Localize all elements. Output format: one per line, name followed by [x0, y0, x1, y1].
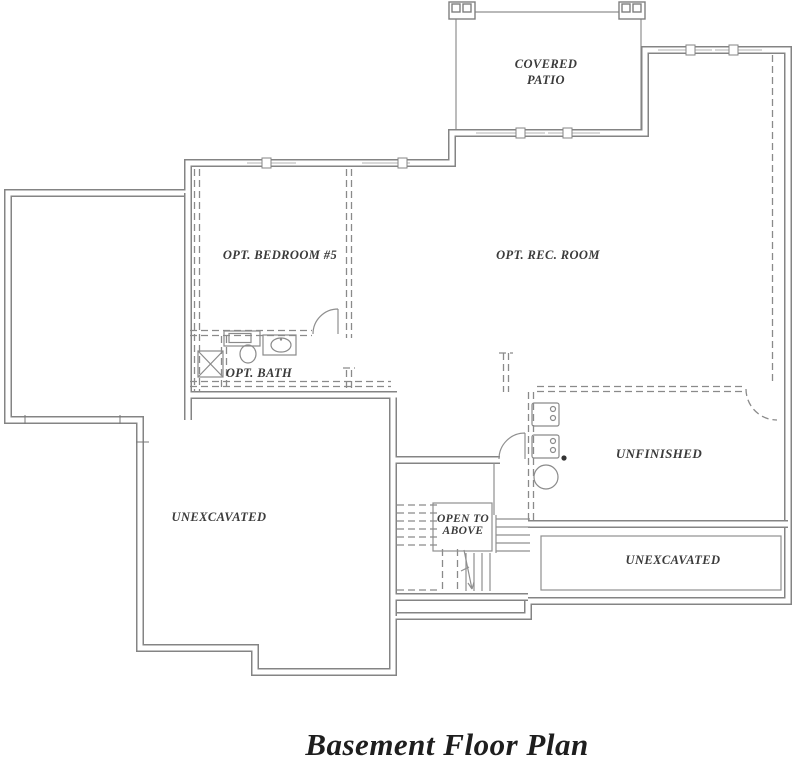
- shower: [198, 351, 223, 377]
- window-tick: [516, 128, 525, 138]
- room-label-unexcavated-right: UNEXCAVATED: [626, 553, 721, 567]
- room-label-open-to-above-line2: ABOVE: [442, 525, 484, 537]
- post-pier: [633, 4, 641, 12]
- window-tick: [398, 158, 407, 168]
- window-glass-line: [247, 50, 762, 163]
- room-label-opt-bedroom: OPT. BEDROOM #5: [223, 248, 337, 262]
- post-pier: [452, 4, 460, 12]
- room-label-unexcavated-left: UNEXCAVATED: [172, 510, 267, 524]
- sink-vanity: [263, 335, 296, 355]
- post-pier: [622, 4, 630, 12]
- furnace-unit: [532, 403, 559, 426]
- floor-drain-dot: [561, 455, 566, 460]
- window-tick: [563, 128, 572, 138]
- post-pier: [463, 4, 471, 12]
- room-label-opt-bath: OPT. BATH: [226, 366, 293, 380]
- opt-wall-bedroom-east: [343, 169, 355, 390]
- opt-wall-bedroom-west: [195, 169, 200, 392]
- plan-title: Basement Floor Plan: [304, 727, 588, 762]
- window-tick: [686, 45, 695, 55]
- vanity-counter: [224, 331, 260, 346]
- opt-wall-bath-south: [190, 382, 391, 387]
- stair-door-arc: [499, 433, 525, 459]
- patio-post-right: [619, 2, 645, 19]
- exterior-walls: [8, 50, 788, 672]
- water-heater-unit: [532, 435, 559, 458]
- windows: [247, 45, 762, 168]
- opt-wall-rec-south: [537, 387, 746, 392]
- doors: [313, 309, 525, 459]
- room-label-opt-rec-room: OPT. REC. ROOM: [496, 248, 600, 262]
- water-tank: [534, 465, 558, 489]
- floor-plan-page: COVERED PATIO OPT. BEDROOM #5 OPT. REC. …: [0, 0, 799, 768]
- window-tick: [729, 45, 738, 55]
- floor-plan-svg: COVERED PATIO OPT. BEDROOM #5 OPT. REC. …: [0, 0, 799, 768]
- window-tick: [262, 158, 271, 168]
- opt-wall-stub: [499, 353, 513, 392]
- toilet: [240, 345, 256, 363]
- room-label-covered-patio-line2: PATIO: [527, 73, 565, 87]
- utility-fixtures: [532, 403, 567, 489]
- stair-direction-arrow: [461, 550, 474, 589]
- room-label-covered-patio-line1: COVERED: [515, 57, 578, 71]
- room-label-open-to-above-line1: OPEN TO: [437, 513, 489, 525]
- room-label-unfinished: UNFINISHED: [616, 446, 703, 461]
- patio-edge-line: [456, 12, 641, 131]
- patio-post-left: [449, 2, 475, 19]
- opt-door-arc-rec: [746, 389, 777, 420]
- bath-door-arc: [313, 309, 338, 334]
